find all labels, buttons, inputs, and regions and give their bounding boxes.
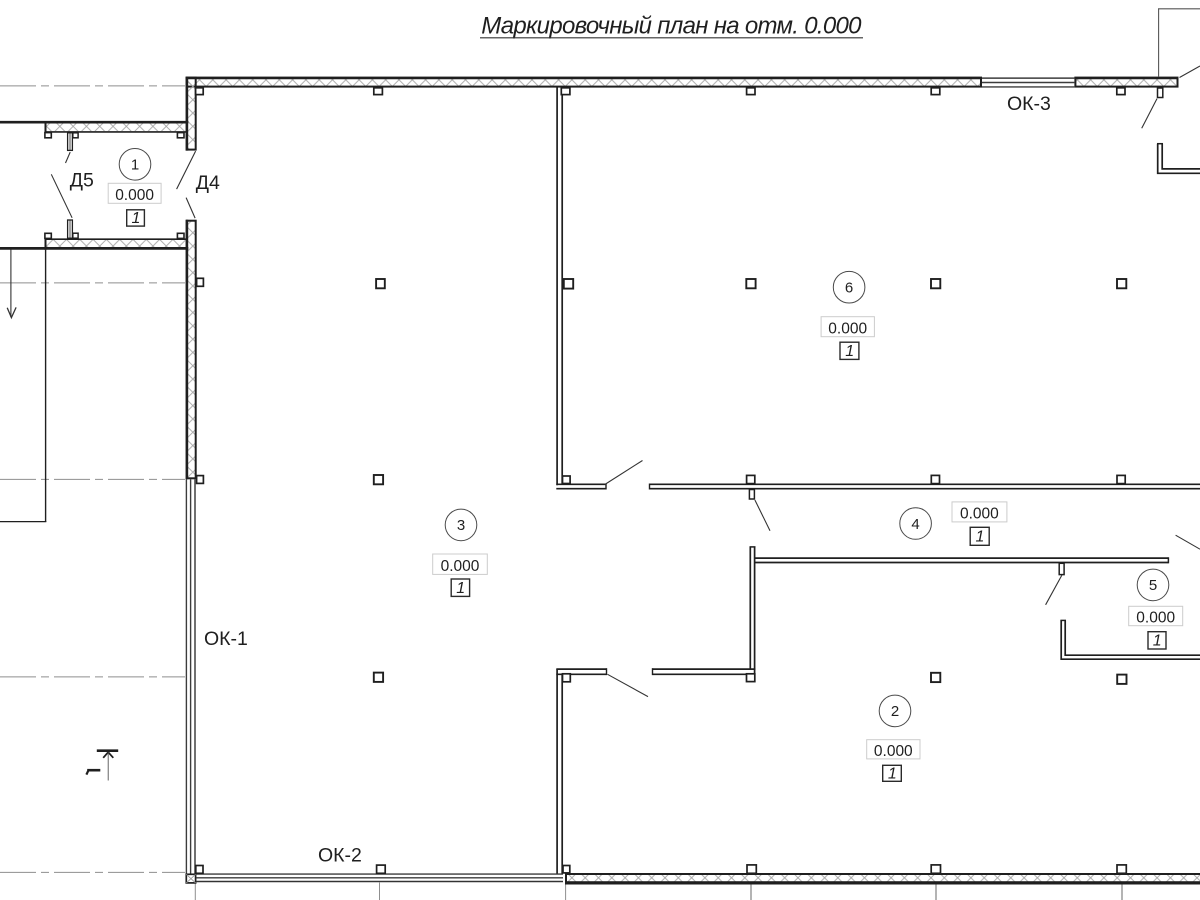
svg-text:5: 5 — [1149, 577, 1157, 594]
svg-text:1: 1 — [456, 580, 465, 597]
svg-text:0.000: 0.000 — [441, 558, 480, 575]
svg-text:6: 6 — [845, 280, 853, 297]
svg-text:4: 4 — [911, 516, 919, 533]
svg-text:0.000: 0.000 — [874, 743, 913, 760]
svg-text:0.000: 0.000 — [960, 506, 999, 523]
svg-text:0.000: 0.000 — [1136, 610, 1175, 627]
svg-text:1: 1 — [131, 157, 139, 174]
svg-text:0.000: 0.000 — [115, 187, 154, 204]
svg-text:Д4: Д4 — [196, 172, 220, 194]
svg-text:1: 1 — [888, 765, 897, 782]
svg-text:ОК-3: ОК-3 — [1007, 93, 1051, 115]
svg-text:0.000: 0.000 — [828, 320, 867, 337]
svg-text:1: 1 — [1153, 632, 1162, 649]
svg-text:Маркировочный план на отм. 0.0: Маркировочный план на отм. 0.000 — [481, 13, 862, 40]
svg-text:1: 1 — [132, 210, 141, 227]
svg-text:3: 3 — [457, 517, 465, 534]
svg-text:1: 1 — [976, 528, 985, 545]
svg-text:ОК-2: ОК-2 — [318, 845, 362, 867]
svg-text:Д5: Д5 — [70, 170, 94, 192]
svg-text:ОК-1: ОК-1 — [204, 628, 248, 650]
svg-text:2: 2 — [891, 703, 899, 720]
svg-text:1: 1 — [845, 343, 854, 360]
